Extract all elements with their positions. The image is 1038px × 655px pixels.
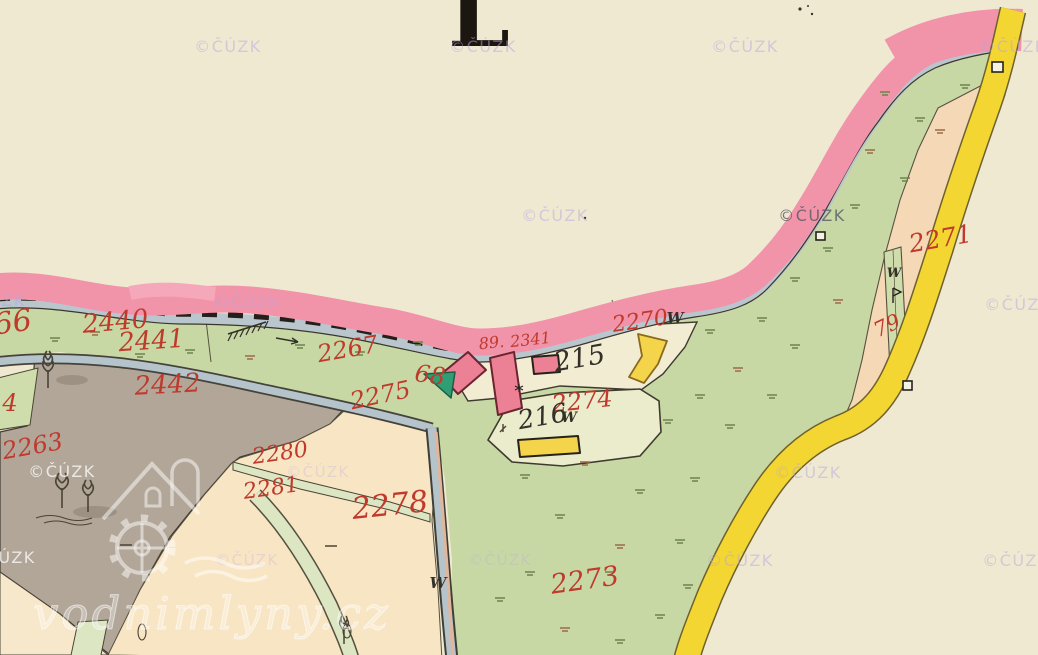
- copyright-watermark: ©ČÚZK: [778, 206, 846, 225]
- meadow-symbol: W: [430, 574, 449, 592]
- copyright-watermark: ©ČÚZK: [0, 291, 26, 310]
- copyright-watermark: ©ČÚZK: [213, 293, 281, 312]
- copyright-watermark: ©ČÚZK: [468, 550, 532, 569]
- site-watermark-text: vodnimlyny.cz: [33, 587, 391, 640]
- copyright-watermark: ©ČÚZK: [774, 463, 842, 482]
- copyright-watermark: ©ČÚZK: [0, 548, 36, 567]
- parcel-label-2441: 2441: [116, 324, 185, 359]
- meadow-symbol: W: [667, 309, 686, 327]
- cadastral-map-image: L 6624402441244242263226722756889.234121…: [0, 0, 1038, 655]
- parcel-label-2442: 2442: [133, 368, 202, 401]
- map-canvas[interactable]: L 6624402441244242263226722756889.234121…: [0, 0, 1038, 655]
- copyright-watermark: ©ČÚZK: [215, 550, 279, 569]
- copyright-watermark: ©ČÚZK: [28, 462, 96, 481]
- copyright-watermark: ©ČÚZK: [521, 206, 589, 225]
- copyright-watermark: ©ČÚZK: [711, 37, 779, 56]
- parcel-label-89.: 89.: [478, 332, 505, 354]
- copyright-watermark: ©ČÚZK: [449, 37, 517, 56]
- building-yellow-rect: [518, 436, 580, 457]
- copyright-watermark: ©ČÚZK: [979, 37, 1038, 56]
- copyright-watermark: ©ČÚZK: [286, 462, 350, 481]
- sheet-letter: L: [448, 0, 510, 67]
- copyright-watermark: ©ČÚZK: [194, 37, 262, 56]
- parcel-label-4: 4: [1, 389, 17, 417]
- meadow-symbol: W: [887, 266, 903, 281]
- copyright-watermark: ©ČÚZK: [706, 551, 774, 570]
- parcel-label-68: 68: [413, 359, 447, 391]
- copyright-watermark: ©ČÚZK: [982, 551, 1038, 570]
- copyright-watermark: ©ČÚZK: [984, 295, 1038, 314]
